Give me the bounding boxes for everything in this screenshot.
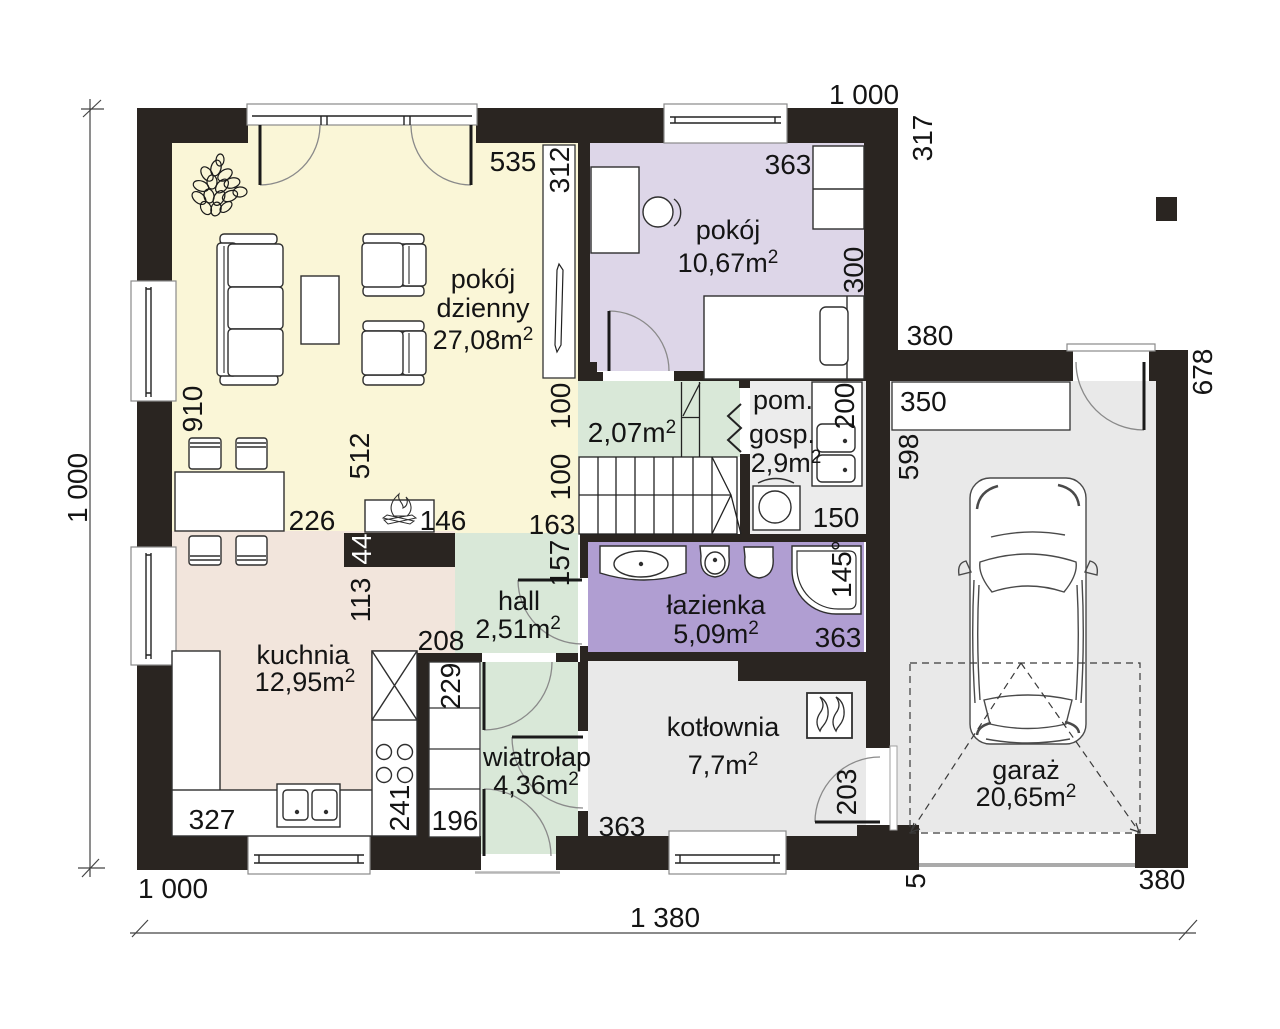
svg-text:1 000: 1 000 [829,79,899,110]
svg-text:łazienka: łazienka [666,590,766,620]
svg-text:pokój: pokój [696,215,761,245]
svg-text:gosp.: gosp. [749,419,815,449]
svg-text:146: 146 [420,505,467,536]
svg-text:113: 113 [345,578,376,623]
svg-text:163: 163 [529,509,576,540]
svg-text:363: 363 [765,149,812,180]
svg-text:1 380: 1 380 [630,902,700,933]
svg-text:1 000: 1 000 [138,873,208,904]
svg-text:12,95m2: 12,95m2 [255,666,356,697]
svg-text:44: 44 [346,533,377,564]
svg-text:350: 350 [900,386,947,417]
svg-text:150: 150 [813,502,860,533]
svg-text:hall: hall [498,586,540,616]
svg-text:196: 196 [432,805,479,836]
svg-text:363: 363 [599,811,646,842]
svg-text:2,9m2: 2,9m2 [751,447,822,478]
svg-text:203: 203 [831,769,862,816]
svg-text:317: 317 [907,115,938,162]
svg-text:2,51m2: 2,51m2 [475,613,561,644]
svg-text:300: 300 [838,247,869,294]
svg-text:kuchnia: kuchnia [256,640,350,670]
svg-text:5: 5 [900,873,931,889]
svg-text:pokój: pokój [451,264,516,294]
svg-text:380: 380 [907,320,954,351]
svg-text:380: 380 [1139,864,1186,895]
svg-text:7,7m2: 7,7m2 [688,749,759,780]
svg-text:145°: 145° [826,540,857,598]
svg-text:27,08m2: 27,08m2 [433,324,534,355]
svg-text:garaż: garaż [992,755,1060,785]
svg-text:910: 910 [177,386,208,433]
svg-text:5,09m2: 5,09m2 [673,618,759,649]
svg-text:2,07m2: 2,07m2 [588,417,676,448]
svg-text:363: 363 [815,622,862,653]
svg-text:312: 312 [544,147,575,194]
svg-text:535: 535 [490,146,537,177]
svg-text:229: 229 [435,663,466,710]
svg-text:157: 157 [544,540,575,587]
svg-text:kotłownia: kotłownia [667,712,781,742]
svg-text:512: 512 [344,433,375,480]
svg-text:10,67m2: 10,67m2 [678,247,779,278]
svg-text:100: 100 [545,383,576,430]
svg-text:200: 200 [829,383,860,430]
svg-text:241: 241 [384,785,415,832]
svg-text:dzienny: dzienny [436,293,530,323]
svg-text:pom.: pom. [753,385,813,415]
svg-text:327: 327 [189,804,236,835]
svg-text:678: 678 [1187,349,1218,396]
svg-text:100: 100 [545,454,576,501]
svg-text:1 000: 1 000 [62,453,93,523]
svg-text:208: 208 [418,625,465,656]
svg-text:598: 598 [893,434,924,481]
svg-text:20,65m2: 20,65m2 [976,781,1077,812]
svg-text:4,36m2: 4,36m2 [493,769,579,800]
svg-text:226: 226 [289,505,336,536]
svg-text:wiatrołap: wiatrołap [482,742,591,772]
